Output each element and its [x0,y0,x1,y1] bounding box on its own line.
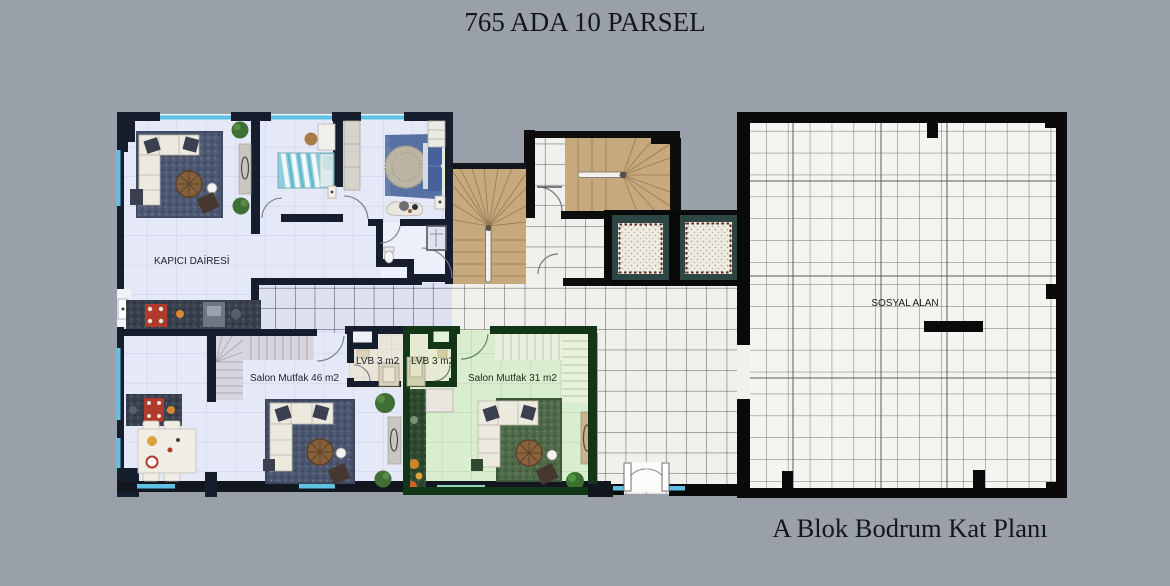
svg-text:LVB 3 m2: LVB 3 m2 [411,356,455,367]
svg-text:765 ADA 10 PARSEL: 765 ADA 10 PARSEL [464,7,705,37]
svg-text:Salon Mutfak 31 m2: Salon Mutfak 31 m2 [468,373,557,384]
svg-text:Salon Mutfak 46 m2: Salon Mutfak 46 m2 [250,373,339,384]
svg-text:LVB 3 m2: LVB 3 m2 [356,356,400,367]
svg-text:KAPICI DAİRESİ: KAPICI DAİRESİ [154,254,230,267]
svg-text:SOSYAL ALAN: SOSYAL ALAN [871,298,938,309]
svg-text:A Blok Bodrum Kat Planı: A Blok Bodrum Kat Planı [772,513,1047,543]
